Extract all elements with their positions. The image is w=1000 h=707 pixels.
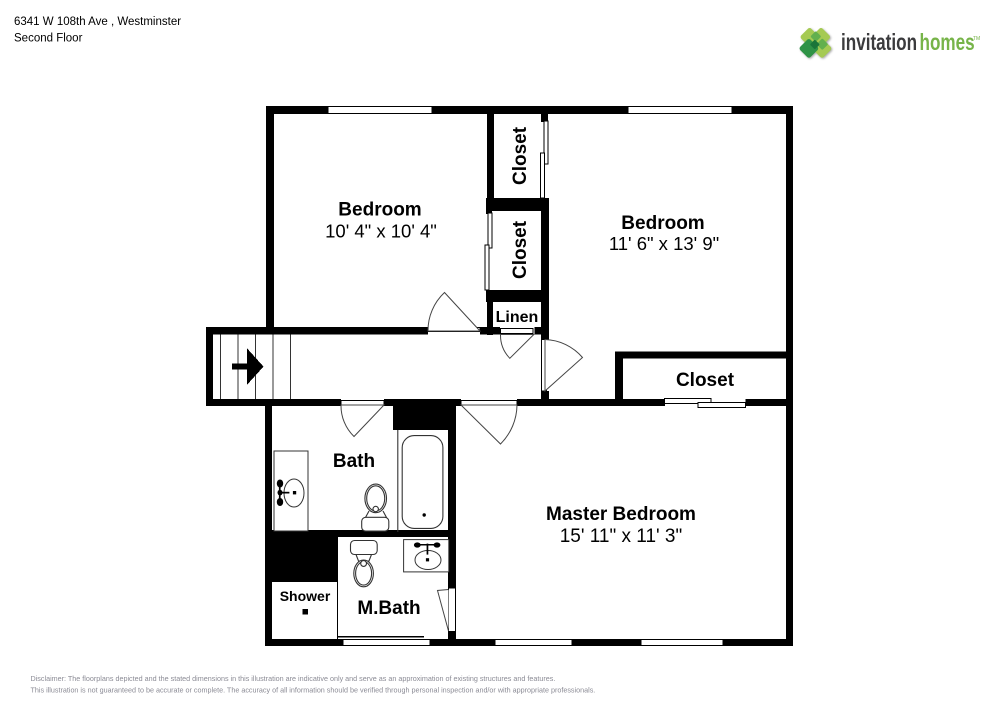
svg-text:Linen: Linen (496, 309, 539, 326)
svg-text:M.Bath: M.Bath (357, 598, 420, 619)
svg-text:Bedroom: Bedroom (338, 200, 421, 221)
svg-text:Disclaimer: The floorplans dep: Disclaimer: The floorplans depicted and … (31, 674, 556, 683)
svg-text:15' 11" x 11' 3": 15' 11" x 11' 3" (560, 526, 683, 547)
svg-text:6341 W 108th Ave , Westminster: 6341 W 108th Ave , Westminster (14, 16, 181, 28)
svg-text:Closet: Closet (510, 126, 531, 185)
svg-text:Bedroom: Bedroom (621, 213, 704, 234)
svg-text:homes: homes (920, 31, 975, 56)
svg-text:Bath: Bath (333, 451, 375, 472)
svg-text:Second Floor: Second Floor (14, 33, 83, 45)
svg-text:Closet: Closet (676, 370, 735, 391)
svg-text:invitation: invitation (841, 31, 917, 56)
svg-text:Closet: Closet (510, 220, 531, 279)
svg-text:Master Bedroom: Master Bedroom (546, 504, 696, 525)
svg-text:10' 4" x 10' 4": 10' 4" x 10' 4" (325, 221, 437, 242)
svg-text:TM: TM (973, 36, 980, 42)
svg-text:Shower: Shower (280, 588, 331, 604)
svg-text:11' 6" x 13' 9": 11' 6" x 13' 9" (609, 233, 719, 254)
svg-text:This illustration is not guara: This illustration is not guaranteed to b… (31, 686, 596, 695)
